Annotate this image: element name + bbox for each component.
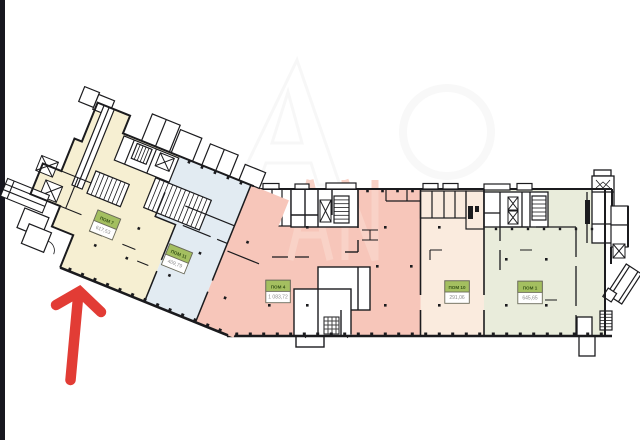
svg-text:1 083,72: 1 083,72	[268, 294, 288, 300]
svg-text:645,65: 645,65	[522, 295, 538, 301]
svg-text:291,06: 291,06	[449, 295, 465, 301]
svg-text:ПОМ 10: ПОМ 10	[448, 285, 466, 290]
svg-text:ПОМ 4: ПОМ 4	[271, 284, 286, 289]
svg-text:ПОМ 1: ПОМ 1	[523, 285, 538, 290]
